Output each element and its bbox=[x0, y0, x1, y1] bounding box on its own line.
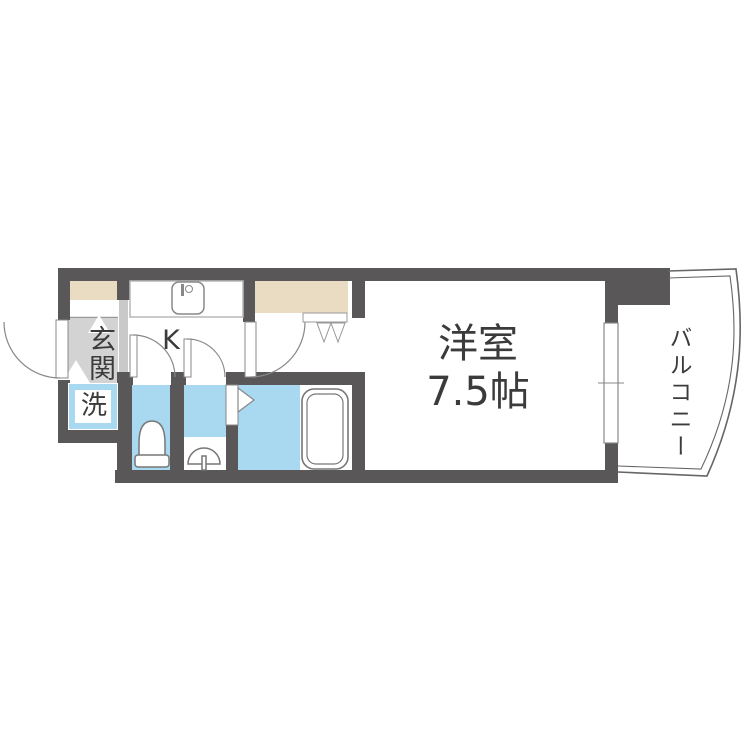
laundry-label: 洗 bbox=[79, 392, 109, 421]
main-room-label: 洋室 7.5帖 bbox=[368, 320, 588, 416]
kitchen-door-washroom bbox=[184, 339, 225, 377]
balcony-label: バルコニー bbox=[660, 306, 690, 481]
hall-closet bbox=[255, 281, 348, 313]
entrance-kitchen-opening bbox=[119, 300, 128, 372]
entrance-door bbox=[4, 320, 68, 378]
main-room-name: 洋室 bbox=[368, 320, 588, 368]
main-room-size: 7.5帖 bbox=[368, 368, 588, 416]
washbasin-icon bbox=[188, 448, 220, 470]
window-sliding-door bbox=[598, 323, 624, 443]
kitchen-sink-icon bbox=[172, 282, 204, 314]
bathtub-icon bbox=[302, 389, 348, 469]
hall-door bbox=[245, 322, 305, 377]
kitchen-label: K bbox=[155, 326, 187, 356]
floor-plan: 玄関 洗 K 洋室 7.5帖 バルコニー bbox=[0, 0, 750, 750]
washroom-floor bbox=[184, 385, 226, 437]
hall-closet-folding-door bbox=[303, 313, 347, 342]
entrance-label: 玄関 bbox=[84, 319, 114, 389]
entrance-shoe-closet bbox=[68, 281, 118, 300]
entrance-step bbox=[68, 300, 118, 318]
